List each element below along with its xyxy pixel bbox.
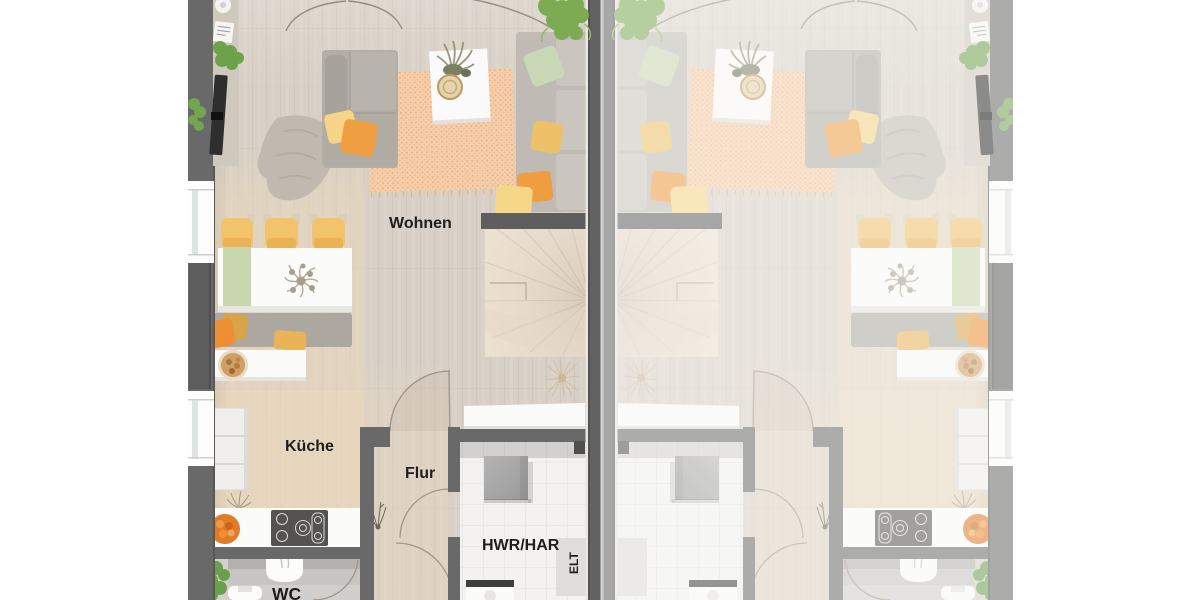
svg-text:HWR/HAR: HWR/HAR bbox=[482, 537, 560, 554]
svg-text:Flur: Flur bbox=[405, 465, 435, 482]
svg-text:WC: WC bbox=[272, 584, 302, 600]
svg-text:Küche: Küche bbox=[285, 438, 334, 455]
svg-text:ELT: ELT bbox=[567, 552, 581, 574]
svg-text:Wohnen: Wohnen bbox=[389, 215, 452, 232]
